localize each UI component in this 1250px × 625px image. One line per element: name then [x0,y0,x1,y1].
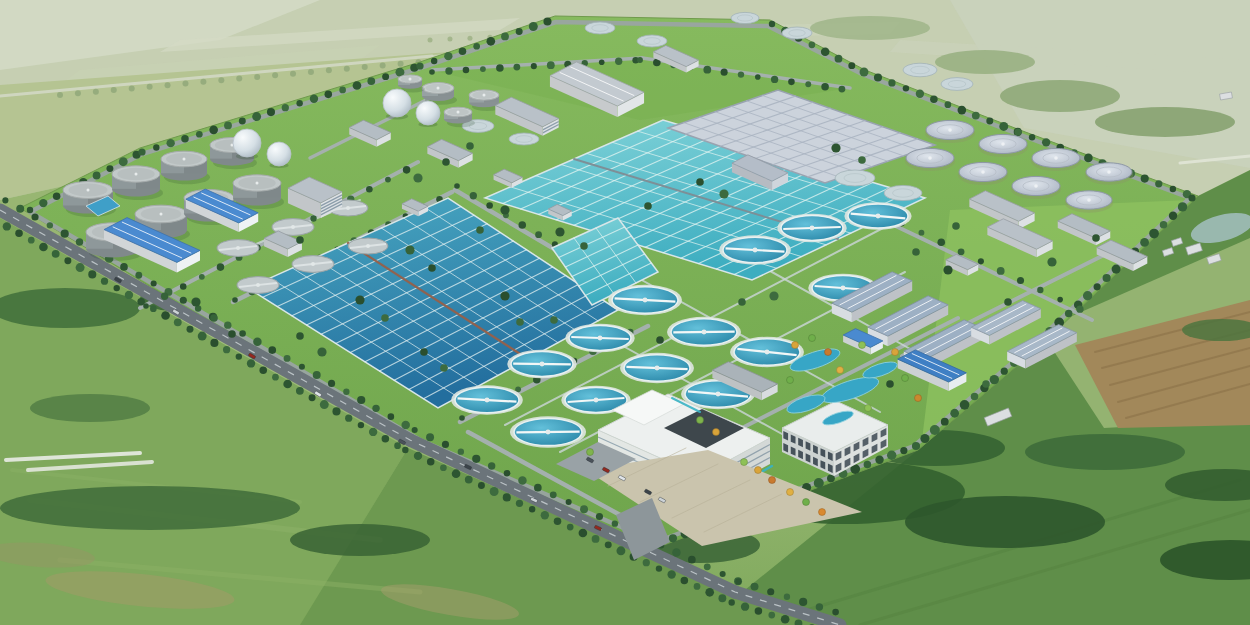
perimeter-tree [416,62,423,69]
site-tree [440,364,448,372]
clarifier-hub [540,362,545,367]
distant-tree [236,76,242,82]
site-tree [516,318,524,326]
ornamental-tree [859,342,866,349]
ornamental-tree [915,395,922,402]
ornamental-tree [803,499,810,506]
site-tree [228,330,236,338]
gas-holder-sphere [383,89,411,119]
roadside-tree [120,263,128,271]
roadside-tree [247,359,255,367]
perimeter-tree [637,57,643,63]
roadside-tree [76,263,85,272]
roadside-tree [566,499,572,505]
perimeter-tree [941,418,949,426]
roadside-tree [729,599,735,605]
distant-tree [380,62,386,68]
site-tree [381,314,389,322]
pale-storage-tank [509,133,539,145]
site-tree [831,143,840,152]
roadside-tree [488,462,495,469]
ornamental-tree [587,449,594,456]
roadside-tree [426,433,434,441]
site-tree [296,332,304,340]
roadside-tree [150,305,157,312]
perimeter-tree [1178,202,1187,211]
roadside-tree [283,380,292,389]
distant-tree [272,72,278,78]
perimeter-tree [153,144,159,150]
ornamental-tree [792,342,799,349]
ornamental-tree [892,349,899,356]
perimeter-tree [496,64,504,72]
perimeter-tree [721,69,728,76]
distant-tree [308,69,314,75]
perimeter-tree [367,77,375,85]
ornamental-tree [787,377,794,384]
site-tree [500,205,509,214]
perimeter-tree [1103,274,1111,282]
clarifier-hub [598,336,603,341]
tree-cluster [290,524,430,556]
tree-cluster [30,394,150,422]
tree-cluster [1095,107,1235,137]
perimeter-tree [599,59,605,65]
roadside-tree [259,367,267,375]
perimeter-tree [958,106,967,115]
perimeter-tree [945,101,952,108]
ornamental-tree [697,417,704,424]
ornamental-tree [713,429,720,436]
clarifier-hub [546,430,551,435]
perimeter-tree [196,131,203,138]
roadside-tree [718,594,726,602]
perimeter-tree [1057,297,1063,303]
roadside-tree [616,546,625,555]
distant-tree [57,92,63,98]
clarifier-tank [620,353,694,383]
roadside-tree [135,272,142,279]
roadside-tree [643,559,650,566]
ornamental-tree [755,467,762,474]
perimeter-tree [529,22,538,31]
perimeter-tree [93,172,101,180]
roadside-tree [516,500,523,507]
site-tree [420,348,428,356]
perimeter-tree [919,230,925,236]
perimeter-tree [990,375,999,384]
site-tree [210,314,218,322]
perimeter-tree [999,122,1008,131]
pale-storage-tank [637,35,667,47]
perimeter-tree [543,18,551,26]
perimeter-tree [531,63,537,69]
ornamental-tree [837,367,844,374]
perimeter-tree [888,79,895,86]
site-tree [442,158,450,166]
roadside-tree [412,427,418,433]
site-tree [413,173,422,182]
pale-storage-tank [782,27,812,39]
ornamental-tree [865,405,872,412]
perimeter-tree [470,192,477,199]
roadside-tree [605,541,612,548]
roadside-tree [47,222,53,228]
site-tree [317,347,326,356]
perimeter-tree [997,267,1005,275]
roadside-tree [186,326,193,333]
distant-tree [398,61,404,67]
roadside-tree [358,422,364,428]
site-tree [355,295,364,304]
distant-tree [111,87,117,93]
perimeter-tree [180,283,187,290]
perimeter-tree [27,207,33,213]
roadside-tree [579,529,588,538]
perimeter-tree [1170,186,1176,192]
covered-clarifier-tank [1065,191,1113,213]
roadside-tree [768,612,775,619]
perimeter-tree [937,238,945,246]
roadside-tree [88,270,96,278]
perimeter-tree [1042,138,1050,146]
clarifier-tank [510,416,586,447]
perimeter-tree [232,297,238,303]
perimeter-tree [445,67,452,74]
perimeter-tree [835,55,843,63]
roadside-tree [427,458,435,466]
site-tree [555,227,564,236]
roadside-tree [2,197,8,203]
perimeter-tree [971,393,979,401]
gray-clarifier-tank [217,240,259,257]
distant-tree [290,71,296,77]
perimeter-tree [805,81,811,87]
perimeter-tree [916,90,924,98]
perimeter-tree [1001,368,1008,375]
roadside-tree [151,281,157,287]
perimeter-tree [119,157,128,166]
roadside-tree [592,535,600,543]
clarifier-hub [876,214,881,219]
perimeter-tree [39,199,47,207]
clarifier-tank [608,285,682,315]
roadside-tree [236,353,242,359]
perimeter-tree [875,456,883,464]
roadside-tree [61,230,69,238]
roadside-tree [101,278,108,285]
perimeter-tree [518,221,526,229]
perimeter-tree [463,67,470,74]
roadside-tree [161,311,170,320]
roadside-tree [681,577,689,585]
perimeter-tree [486,202,493,209]
perimeter-tree [217,263,225,271]
distant-tree [326,67,332,73]
perimeter-tree [1017,277,1024,284]
covered-clarifier-tank [978,134,1028,157]
perimeter-tree [1141,175,1149,183]
perimeter-tree [454,183,460,189]
roadside-tree [832,609,839,616]
perimeter-tree [809,41,816,48]
roadside-tree [268,346,276,354]
site-tree [1047,257,1056,266]
gray-clarifier-tank [348,238,388,254]
ornamental-tree [787,489,794,496]
perimeter-tree [864,461,872,469]
perimeter-tree [224,122,232,130]
covered-clarifier-tank [1085,163,1133,185]
gas-holder-sphere [233,129,261,159]
covered-clarifier-tank [1031,148,1081,171]
roadside-tree [299,364,305,370]
roadside-tree [442,441,449,448]
roadside-tree [320,400,329,409]
perimeter-tree [252,112,261,121]
site-tree [952,222,960,230]
perimeter-tree [771,76,778,83]
roadside-tree [784,594,790,600]
roadside-tree [198,332,207,341]
site-tree [982,380,990,388]
perimeter-tree [480,66,486,72]
perimeter-tree [1112,265,1121,274]
roadside-tree [401,421,409,429]
roadside-tree [332,407,340,415]
perimeter-tree [930,425,940,435]
perimeter-tree [429,69,435,75]
perimeter-tree [459,415,465,421]
ornamental-tree [769,477,776,484]
perimeter-tree [669,534,677,542]
clarifier-hub [655,366,660,371]
site-tree [405,245,414,254]
distant-tree [165,82,171,88]
roadside-tree [224,321,231,328]
perimeter-tree [1094,283,1101,290]
site-tree [1092,234,1100,242]
roadside-tree [596,513,603,520]
clarifier-hub [841,286,846,291]
distant-tree [218,77,224,83]
perimeter-tree [138,148,145,155]
gas-holder-sphere [416,101,440,127]
perimeter-tree [199,274,205,280]
clarifier-hub [716,392,721,397]
clarifier-tank [844,202,911,230]
distant-tree [93,89,99,95]
perimeter-tree [403,166,411,174]
roadside-tree [253,338,261,346]
perimeter-tree [821,47,830,56]
roadside-tree [735,578,741,584]
clarifier-hub [810,226,815,231]
clarifier-tank [667,317,741,347]
clarifier-tank [777,214,846,243]
clarifier-hub [643,298,648,303]
tree-cluster [0,486,300,530]
perimeter-tree [353,81,362,90]
ornamental-tree [902,375,909,382]
roadside-tree [720,571,726,577]
storage-tank-small [444,107,475,127]
perimeter-tree [1149,229,1159,239]
ornamental-tree [819,509,826,516]
pale-storage-tank [884,185,922,200]
roadside-tree [688,556,696,564]
roadside-tree [309,394,316,401]
roadside-tree [667,570,675,578]
roadside-tree [114,285,120,291]
roadside-tree [550,491,557,498]
perimeter-tree [930,95,938,103]
distant-tree [75,90,81,96]
gas-holder-sphere [267,142,291,168]
roadside-tree [580,505,588,513]
distant-tree [428,38,433,43]
roadside-tree [52,250,60,258]
perimeter-tree [535,231,542,238]
perimeter-tree [296,100,302,106]
roadside-tree [503,493,511,501]
perimeter-tree [1140,238,1149,247]
roadside-tree [705,588,714,597]
perimeter-tree [1188,194,1195,201]
roadside-tree [28,237,35,244]
perimeter-tree [487,37,496,46]
site-tree [719,189,728,198]
digester-tank [112,166,163,200]
perimeter-tree [501,32,509,40]
roadside-tree [174,318,182,326]
perimeter-tree [755,74,761,80]
perimeter-tree [209,126,218,135]
tree-cluster [810,16,930,40]
tree-cluster [1000,80,1120,112]
perimeter-tree [1029,134,1035,140]
perimeter-tree [1083,291,1092,300]
perimeter-tree [1076,305,1083,312]
tree-cluster [935,50,1035,74]
perimeter-tree [1084,154,1093,163]
clarifier-tank [719,235,791,264]
site-tree [296,236,304,244]
roadside-tree [210,339,218,347]
roadside-tree [31,213,38,220]
roadside-tree [223,346,230,353]
perimeter-tree [431,58,437,64]
perimeter-tree [516,28,523,35]
ornamental-tree [825,349,832,356]
perimeter-tree [814,478,824,488]
perimeter-tree [738,71,744,77]
roadside-tree [478,482,485,489]
distant-tree [254,74,260,80]
clarifier-tank [565,324,634,353]
roadside-tree [388,413,395,420]
perimeter-tree [821,83,829,91]
roadside-tree [567,524,574,531]
roadside-tree [612,520,618,526]
roadside-tree [76,238,83,245]
site-tree [858,156,866,164]
perimeter-tree [972,112,980,120]
roadside-tree [284,355,291,362]
perimeter-tree [1014,128,1021,135]
roadside-tree [15,230,23,238]
roadside-tree [414,452,422,460]
roadside-tree [440,464,447,471]
treatment-plant-aerial-render [0,0,1250,625]
clarifier-tank [451,385,523,414]
roadside-tree [504,470,511,477]
gray-clarifier-tank [237,277,279,294]
roadside-tree [704,563,711,570]
covered-clarifier-tank [1011,176,1061,199]
site-tree [696,178,704,186]
clarifier-hub [765,350,770,355]
roadside-tree [382,435,390,443]
roadside-tree [402,447,408,453]
perimeter-tree [848,62,855,69]
roadside-tree [741,603,749,611]
distant-tree [344,66,350,72]
roadside-tree [272,374,279,381]
roadside-tree [313,371,321,379]
roadside-tree [345,415,352,422]
clarifier-hub [753,248,758,253]
clarifier-hub [485,398,490,403]
perimeter-tree [1037,287,1043,293]
roadside-tree [394,442,401,449]
perimeter-tree [788,79,795,86]
distant-tree [467,36,472,41]
tree-cluster [905,496,1105,548]
site-tree [886,380,894,388]
roadside-tree [239,330,246,337]
site-tree [476,226,484,234]
site-tree [191,297,200,306]
roadside-tree [296,387,304,395]
perimeter-tree [325,91,333,99]
clarifier-hub [594,398,599,403]
roadside-tree [357,396,365,404]
site-tree [500,291,509,300]
perimeter-tree [950,409,959,418]
roadside-tree [518,476,526,484]
distant-tree [182,80,188,86]
roadside-tree [452,469,461,478]
perimeter-tree [978,258,984,264]
perimeter-tree [385,177,391,183]
covered-clarifier-tank [905,148,955,171]
perimeter-tree [513,64,520,71]
perimeter-tree [106,165,113,172]
perimeter-tree [382,73,389,80]
site-tree [912,248,920,256]
site-tree [644,202,652,210]
site-tree [466,142,474,150]
perimeter-tree [874,73,882,81]
perimeter-tree [339,87,346,94]
roadside-tree [490,487,499,496]
perimeter-tree [912,442,920,450]
roadside-tree [64,257,71,264]
distant-tree [129,85,135,91]
roadside-tree [372,405,379,412]
roadside-tree [16,205,24,213]
